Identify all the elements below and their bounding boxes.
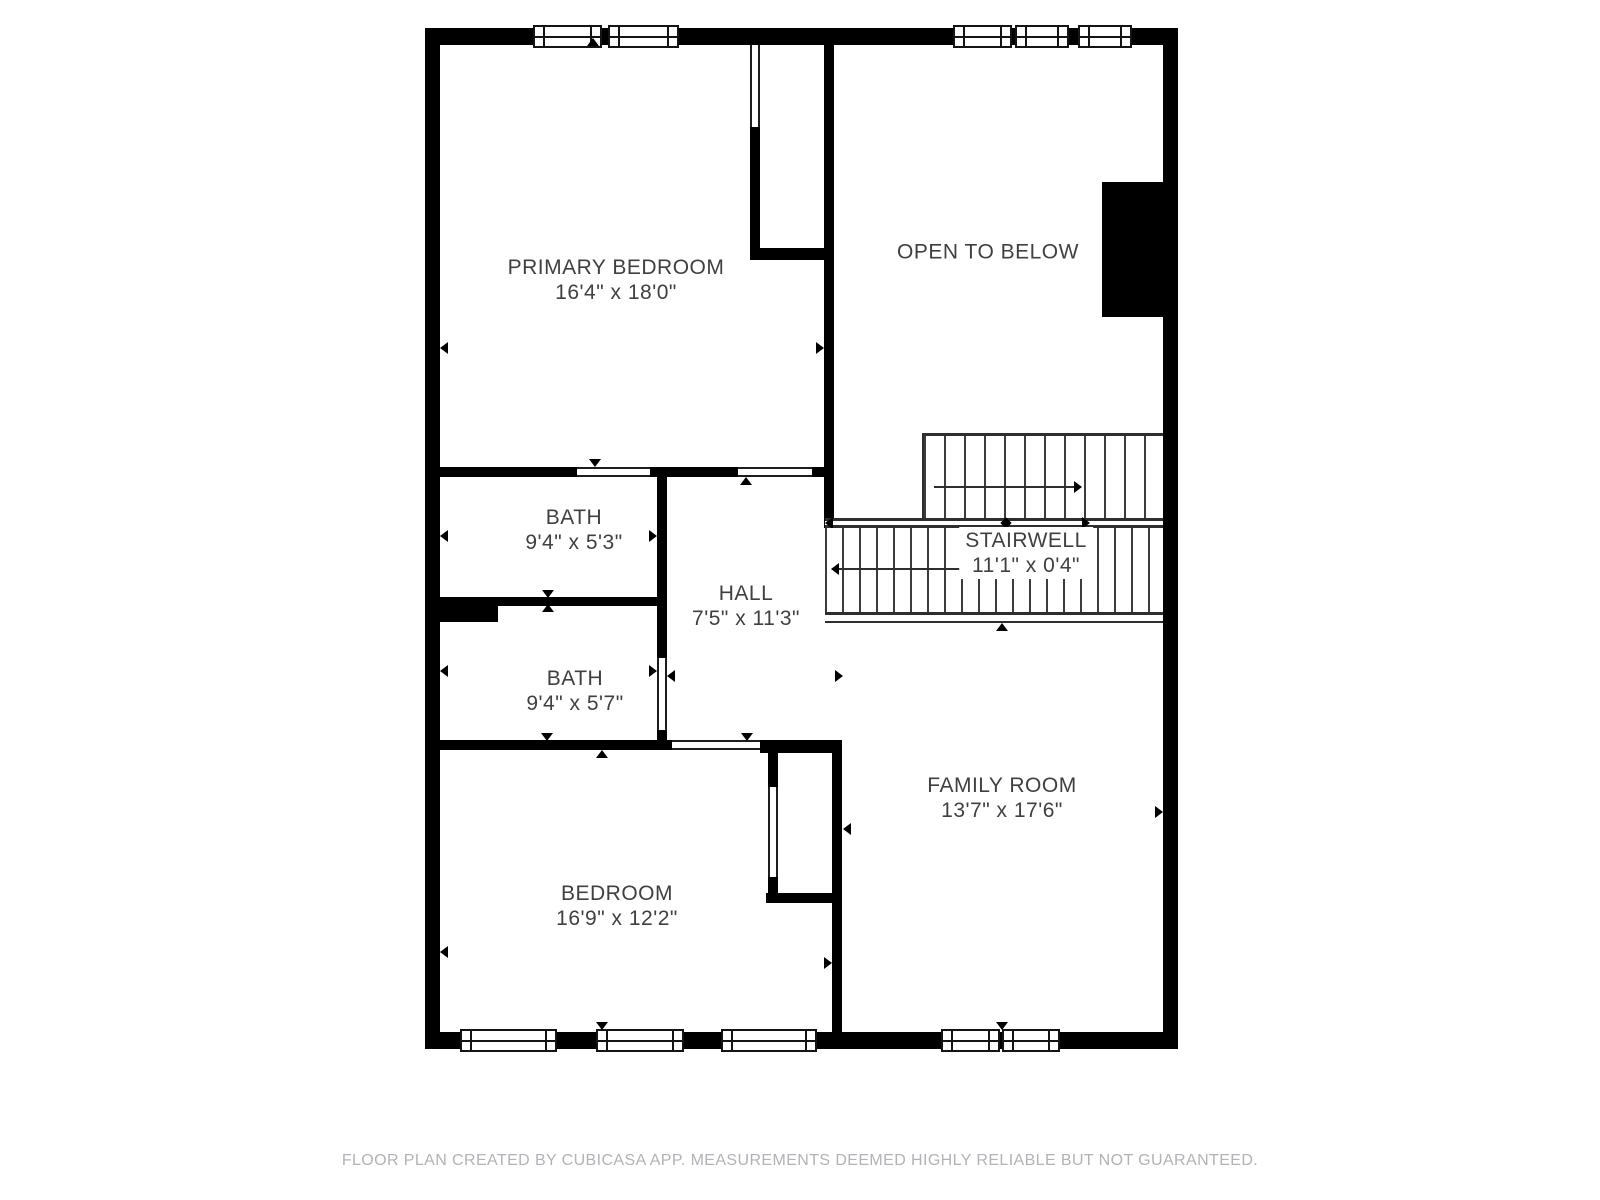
room-name: STAIRWELL xyxy=(965,528,1087,553)
window xyxy=(596,1029,684,1052)
wall-closet-nook-bottom xyxy=(750,248,834,260)
measure-arrow-icon xyxy=(824,957,832,969)
room-dims: 9'4" x 5'3" xyxy=(525,530,622,555)
room-label-bedroom: BEDROOM 16'9" x 12'2" xyxy=(556,881,678,931)
wall-bedroom-top xyxy=(433,740,672,750)
window xyxy=(608,25,679,48)
room-name: HALL xyxy=(692,581,800,606)
room-label-stairwell: STAIRWELL 11'1" x 0'4" xyxy=(959,527,1093,579)
measure-arrow-icon xyxy=(667,670,675,682)
room-dims: 9'4" x 5'7" xyxy=(526,691,623,716)
stairs-direction-arrow-icon xyxy=(831,563,839,575)
room-label-family-room: FAMILY ROOM 13'7" x 17'6" xyxy=(927,773,1076,823)
measure-arrow-icon xyxy=(440,342,448,354)
door-opening-closet xyxy=(768,787,778,877)
room-label-bath-1: BATH 9'4" x 5'3" xyxy=(525,505,622,555)
window xyxy=(953,25,1012,48)
measure-arrow-icon xyxy=(835,670,843,682)
wall-marker-icon xyxy=(542,604,554,612)
chimney-block xyxy=(1102,182,1163,317)
wall-bath-divider-thick xyxy=(433,606,498,622)
wall-bedroom-openbelow-divider xyxy=(824,45,834,528)
measure-arrow-icon xyxy=(440,946,448,958)
window-marker-icon xyxy=(996,1022,1008,1030)
room-dims: 16'4" x 18'0" xyxy=(508,280,725,305)
wall-hall-top-right xyxy=(812,467,824,477)
room-name: FAMILY ROOM xyxy=(927,773,1076,798)
room-label-primary-bedroom: PRIMARY BEDROOM 16'4" x 18'0" xyxy=(508,255,725,305)
room-name: BATH xyxy=(526,666,623,691)
room-label-hall: HALL 7'5" x 11'3" xyxy=(692,581,800,631)
wall-closet-bottom xyxy=(766,893,842,903)
stairs-up-direction-line xyxy=(934,486,1080,488)
stairs-marker-icon xyxy=(996,623,1008,631)
door-swing-marker-icon xyxy=(741,733,753,741)
window-marker-icon xyxy=(587,38,599,46)
stairs-upper-flight xyxy=(922,433,1163,518)
room-dims: 7'5" x 11'3" xyxy=(692,606,800,631)
wall-bath1-top xyxy=(433,467,577,477)
window xyxy=(1078,25,1132,48)
door-opening-bath2 xyxy=(657,658,667,730)
measure-arrow-icon xyxy=(1155,806,1163,818)
door-opening-bedroom xyxy=(672,740,760,750)
room-dims: 13'7" x 17'6" xyxy=(927,798,1076,823)
outer-wall-right xyxy=(1163,28,1178,1049)
measure-arrow-icon xyxy=(843,823,851,835)
room-name: BEDROOM xyxy=(556,881,678,906)
measure-arrow-icon xyxy=(816,342,824,354)
wall-marker-icon xyxy=(541,733,553,741)
stairs-direction-arrow-icon xyxy=(1074,481,1082,493)
door-opening-primary-to-hall xyxy=(738,467,812,477)
footer-disclaimer: FLOOR PLAN CREATED BY CUBICASA APP. MEAS… xyxy=(0,1152,1600,1170)
room-name: OPEN TO BELOW xyxy=(897,240,1079,265)
wall-closet-nook-left xyxy=(750,127,760,260)
window xyxy=(1002,1029,1060,1052)
room-dims: 16'9" x 12'2" xyxy=(556,906,678,931)
floor-plan-canvas: PRIMARY BEDROOM 16'4" x 18'0" OPEN TO BE… xyxy=(0,0,1600,1200)
wall-bath-hall-vertical xyxy=(657,467,667,658)
wall-bedroom-familyroom-divider xyxy=(832,740,842,1033)
room-label-bath-2: BATH 9'4" x 5'7" xyxy=(526,666,623,716)
measure-arrow-icon xyxy=(440,665,448,677)
room-dims: 11'1" x 0'4" xyxy=(965,553,1087,578)
outer-wall-left xyxy=(425,28,440,1049)
window xyxy=(460,1029,557,1052)
stairs-bottom-edge-line xyxy=(825,621,1163,623)
window xyxy=(941,1029,1000,1052)
measure-arrow-icon xyxy=(649,530,657,542)
room-name: PRIMARY BEDROOM xyxy=(508,255,725,280)
door-swing-marker-icon xyxy=(589,459,601,467)
door-swing-marker-icon xyxy=(740,477,752,485)
wall-closet-top xyxy=(760,740,842,753)
room-label-open-to-below: OPEN TO BELOW xyxy=(897,240,1079,265)
measure-arrow-icon xyxy=(440,530,448,542)
wall-marker-icon xyxy=(542,590,554,598)
door-opening-closet-nook xyxy=(750,45,760,127)
wall-closet-left-upper xyxy=(768,753,778,787)
window xyxy=(721,1029,817,1052)
wall-marker-icon xyxy=(596,750,608,758)
window xyxy=(1015,25,1069,48)
window-marker-icon xyxy=(596,1022,608,1030)
measure-arrow-icon xyxy=(649,665,657,677)
room-name: BATH xyxy=(525,505,622,530)
door-opening-bath1 xyxy=(577,467,650,477)
